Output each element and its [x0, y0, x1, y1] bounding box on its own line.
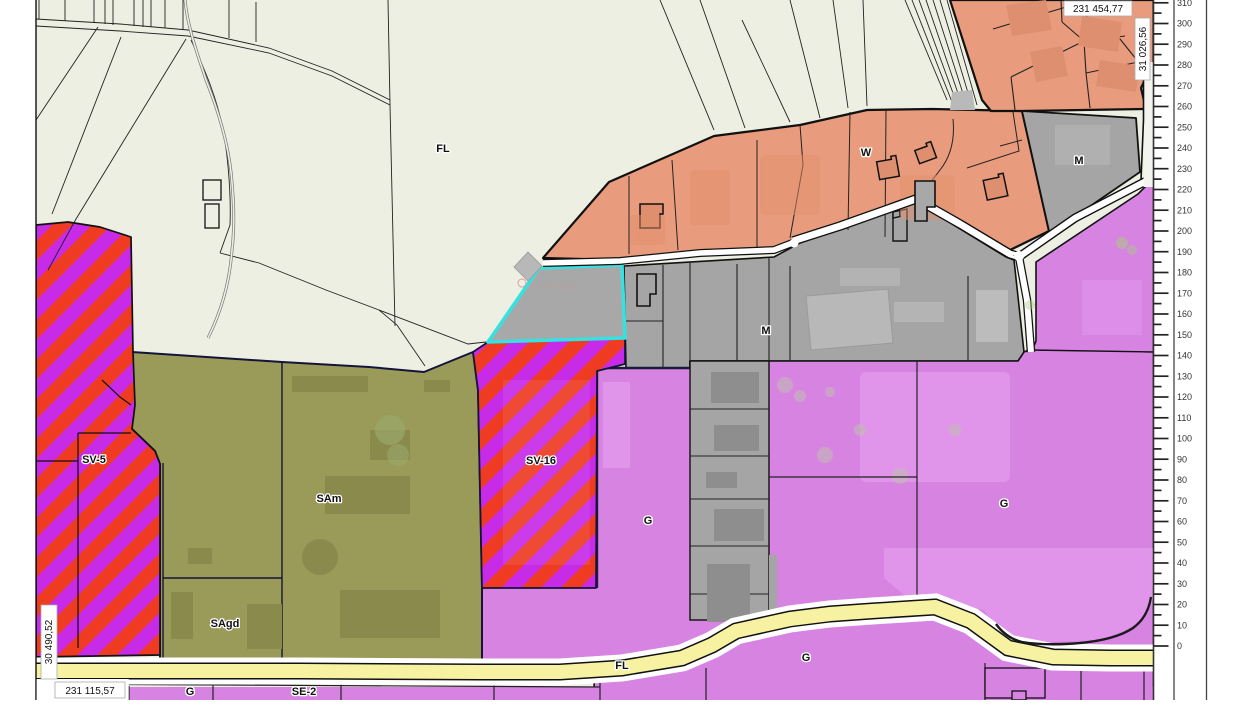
- svg-text:60: 60: [1177, 517, 1187, 527]
- svg-text:SV-5: SV-5: [82, 454, 106, 466]
- svg-text:210: 210: [1177, 205, 1192, 215]
- svg-text:200: 200: [1177, 226, 1192, 236]
- svg-text:231 454,77: 231 454,77: [1073, 4, 1123, 15]
- svg-text:280: 280: [1177, 60, 1192, 70]
- svg-text:300: 300: [1177, 19, 1192, 29]
- svg-text:120: 120: [1177, 392, 1192, 402]
- svg-text:M: M: [1074, 155, 1083, 167]
- svg-text:100: 100: [1177, 434, 1192, 444]
- svg-text:240: 240: [1177, 143, 1192, 153]
- svg-text:SAm: SAm: [316, 493, 341, 505]
- svg-text:G: G: [802, 652, 811, 664]
- svg-text:SE-2: SE-2: [292, 686, 316, 698]
- svg-text:260: 260: [1177, 102, 1192, 112]
- svg-text:30 490,52: 30 490,52: [44, 619, 55, 664]
- svg-text:150: 150: [1177, 330, 1192, 340]
- svg-text:FL: FL: [436, 143, 450, 155]
- svg-text:170: 170: [1177, 288, 1192, 298]
- svg-text:80: 80: [1177, 475, 1187, 485]
- svg-text:90: 90: [1177, 454, 1187, 464]
- svg-text:M: M: [761, 325, 770, 337]
- svg-text:220: 220: [1177, 185, 1192, 195]
- svg-text:20: 20: [1177, 600, 1187, 610]
- svg-text:110: 110: [1177, 413, 1191, 423]
- svg-text:70: 70: [1177, 496, 1187, 506]
- svg-text:SV-16: SV-16: [526, 455, 556, 467]
- svg-text:G: G: [644, 515, 653, 527]
- svg-text:140: 140: [1177, 351, 1192, 361]
- svg-text:231 115,57: 231 115,57: [65, 686, 115, 697]
- svg-text:G: G: [1000, 498, 1009, 510]
- svg-text:10: 10: [1177, 621, 1187, 631]
- svg-text:50: 50: [1177, 538, 1187, 548]
- svg-text:30: 30: [1177, 579, 1187, 589]
- svg-text:190: 190: [1177, 247, 1192, 257]
- svg-text:130: 130: [1177, 371, 1192, 381]
- svg-text:SAgd: SAgd: [211, 618, 240, 630]
- svg-text:40: 40: [1177, 558, 1187, 568]
- svg-text:W: W: [861, 147, 872, 159]
- svg-text:250: 250: [1177, 122, 1192, 132]
- svg-text:G: G: [186, 686, 195, 698]
- svg-text:31 026,56: 31 026,56: [1138, 26, 1149, 71]
- svg-text:FL: FL: [615, 660, 629, 672]
- svg-text:0: 0: [1177, 641, 1182, 651]
- svg-text:270: 270: [1177, 81, 1192, 91]
- svg-text:310: 310: [1177, 0, 1192, 8]
- svg-text:160: 160: [1177, 309, 1192, 319]
- svg-text:180: 180: [1177, 268, 1192, 278]
- svg-text:290: 290: [1177, 40, 1192, 50]
- svg-text:GRAND TILB: GRAND TILB: [531, 282, 576, 291]
- svg-text:230: 230: [1177, 164, 1192, 174]
